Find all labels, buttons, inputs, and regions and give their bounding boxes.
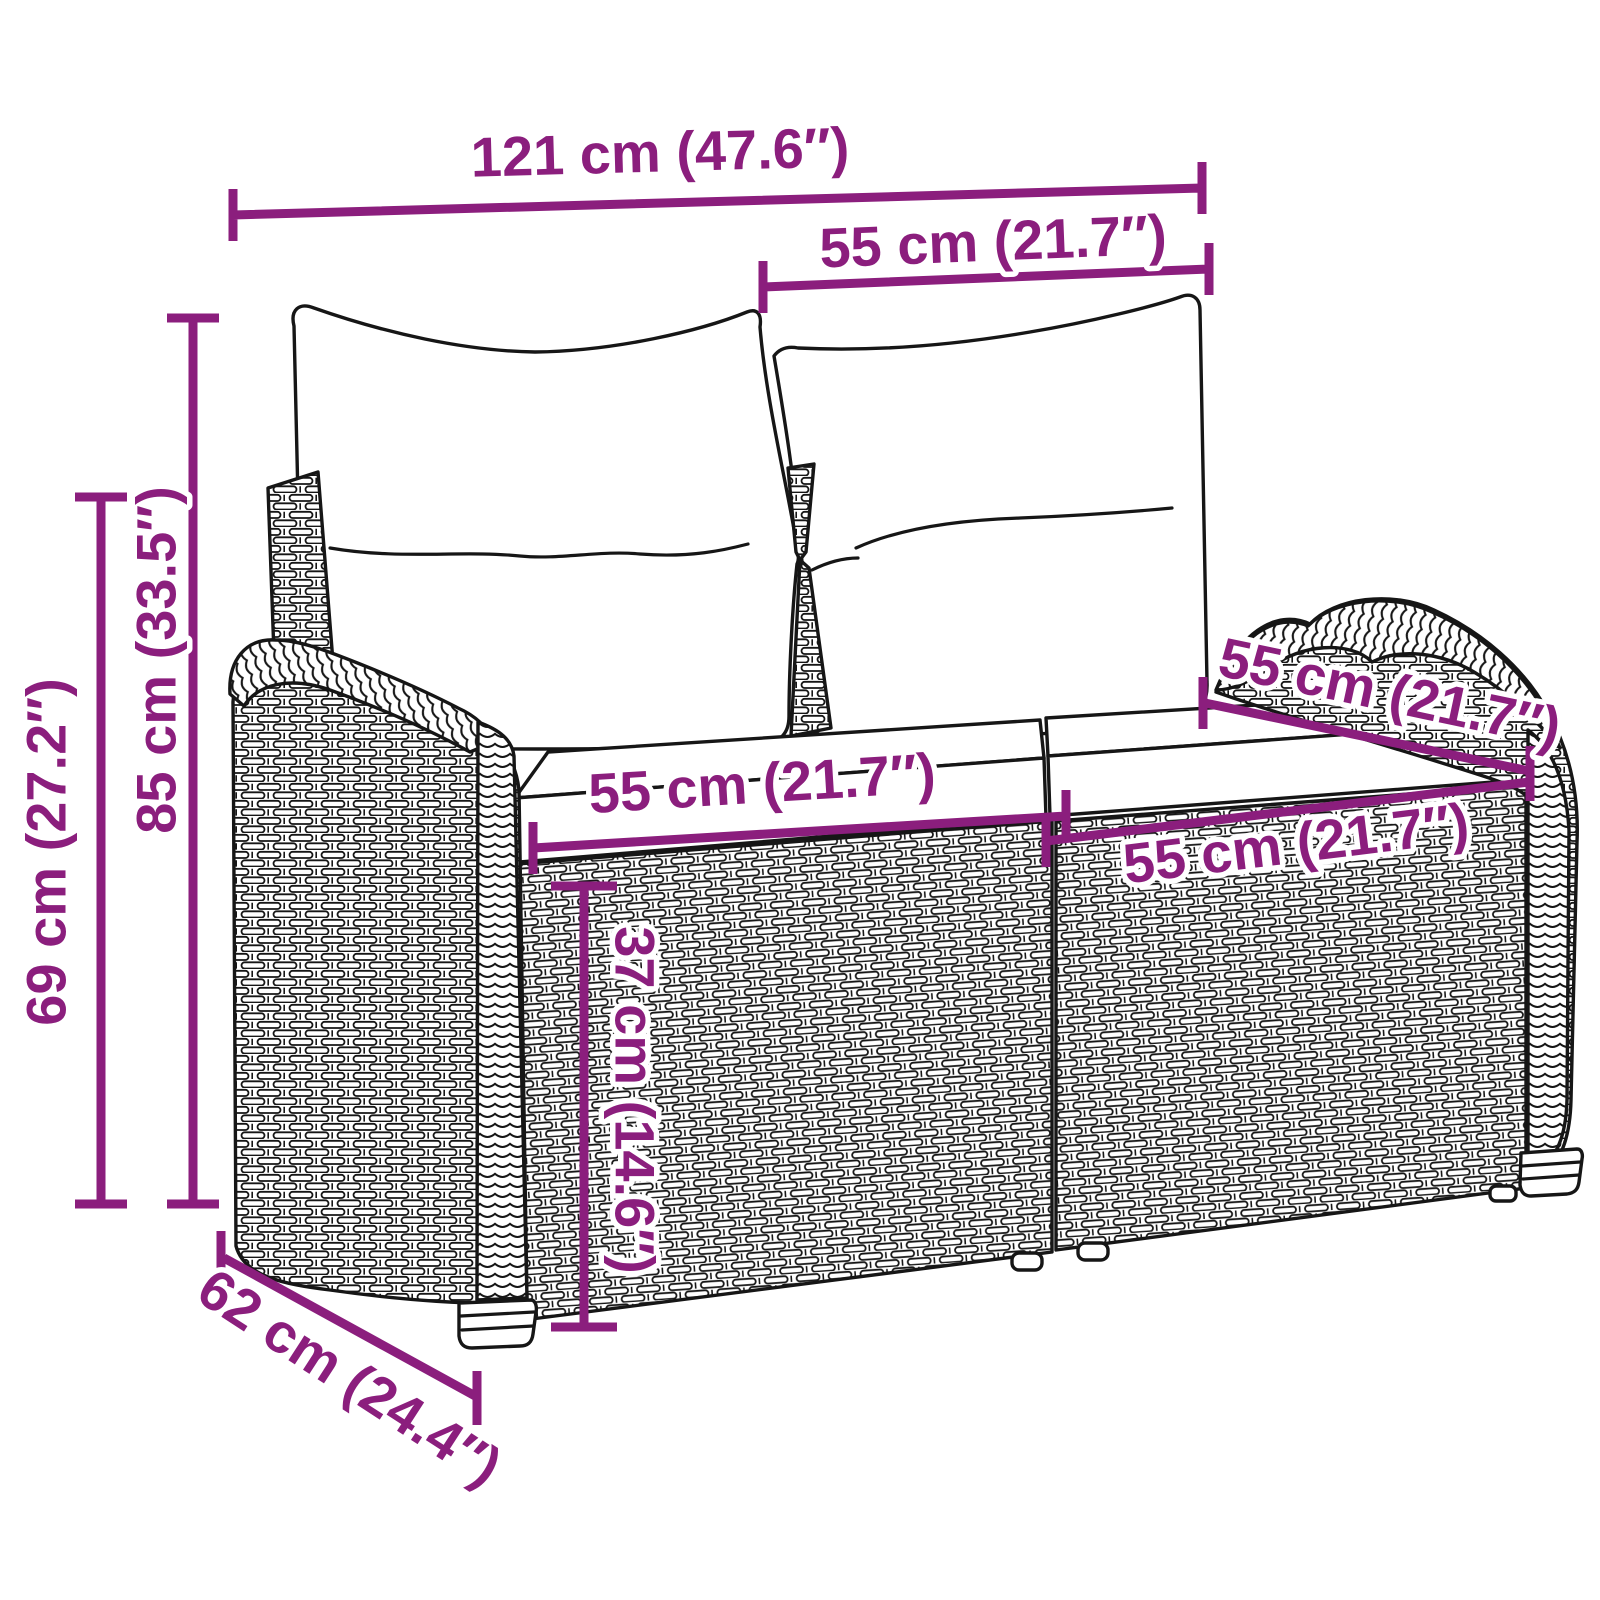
armrest-right-foot	[1520, 1149, 1582, 1196]
foot-center-right	[1078, 1243, 1108, 1260]
dimension-diagram: 121 cm (47.6″) 55 cm (21.7″) 85 cm (33.5…	[0, 0, 1600, 1600]
dim-overall-width-label: 121 cm (47.6″)	[470, 115, 850, 189]
dim-armrest-height-line	[75, 497, 127, 1204]
dim-total-height-label: 85 cm (33.5″)	[125, 486, 188, 833]
dim-armrest-height: 69 cm (27.2″)	[15, 497, 128, 1204]
dim-total-height: 85 cm (33.5″)	[125, 318, 220, 1204]
dim-backrest-width-label: 55 cm (21.7″)	[818, 203, 1168, 280]
back-cushion-right	[774, 295, 1207, 738]
dim-backrest-width: 55 cm (21.7″)	[763, 203, 1209, 313]
dim-armrest-height-label: 69 cm (27.2″)	[15, 678, 78, 1025]
dim-seat-height-label: 37 cm (14.6″)	[604, 926, 667, 1273]
armrest-left-foot	[459, 1300, 536, 1348]
base-panel-left	[517, 821, 1052, 1320]
diagram-canvas: 121 cm (47.6″) 55 cm (21.7″) 85 cm (33.5…	[0, 0, 1600, 1600]
foot-center-left	[1012, 1253, 1042, 1270]
foot-base-right	[1490, 1186, 1516, 1201]
